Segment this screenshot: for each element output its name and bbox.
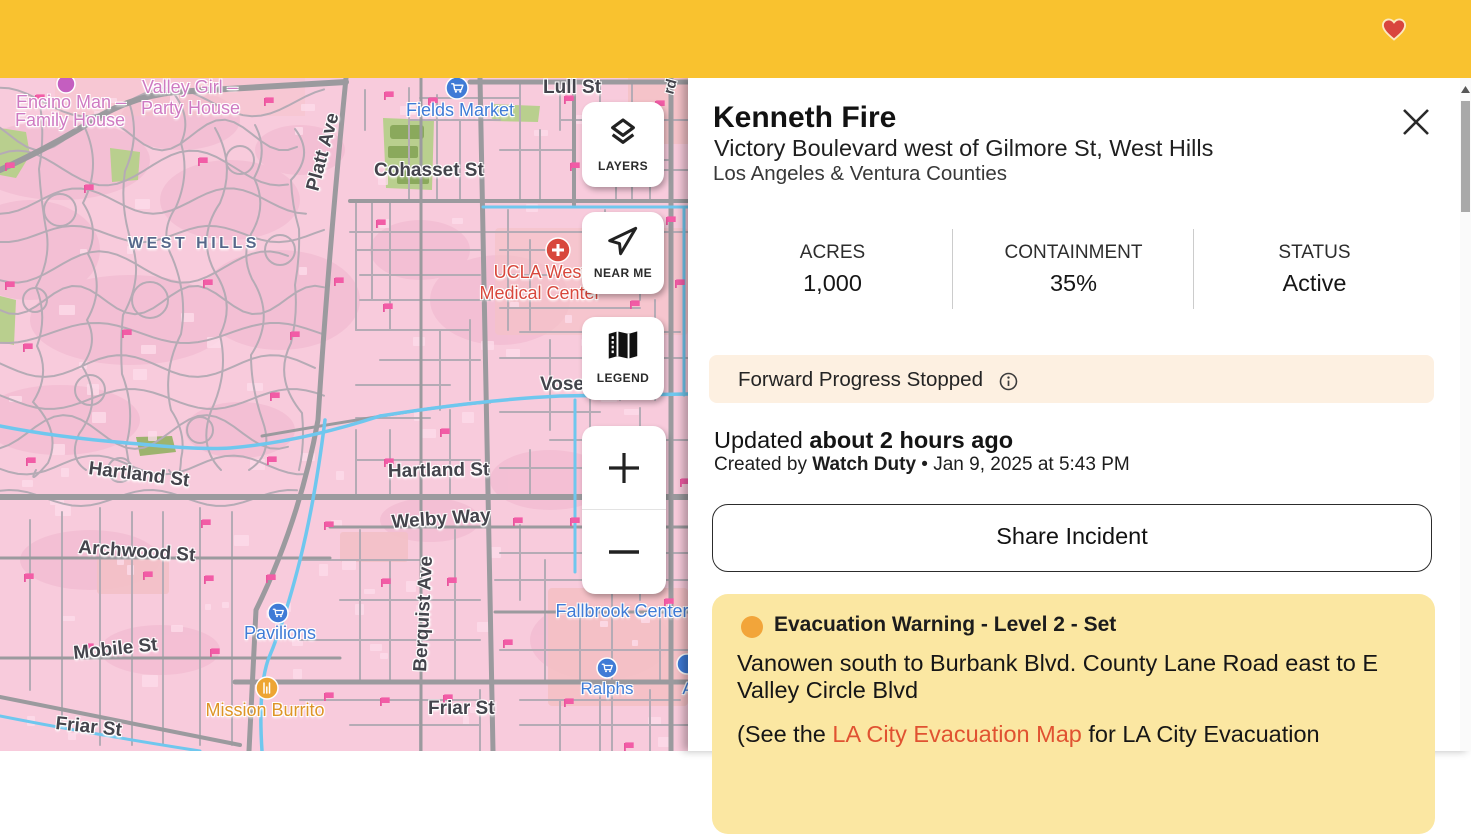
svg-text:Family House: Family House — [15, 110, 125, 130]
svg-text:Ralphs: Ralphs — [581, 679, 634, 698]
svg-text:Vose: Vose — [540, 374, 584, 395]
svg-text:WEST HILLS: WEST HILLS — [128, 235, 260, 252]
svg-text:Party House: Party House — [141, 98, 240, 118]
svg-text:Encino Man –: Encino Man – — [16, 92, 126, 112]
svg-text:Cohasset St: Cohasset St — [374, 160, 484, 181]
svg-text:Valley Girl –: Valley Girl – — [142, 78, 238, 97]
svg-text:Fallbrook Center: Fallbrook Center — [555, 601, 688, 621]
svg-text:Fields Market: Fields Market — [406, 100, 514, 120]
svg-text:Friar St: Friar St — [428, 698, 495, 719]
svg-text:Pavilions: Pavilions — [244, 623, 316, 643]
svg-text:Mission Burrito: Mission Burrito — [205, 700, 324, 720]
svg-text:Hartland St: Hartland St — [388, 459, 490, 482]
svg-text:Lull St: Lull St — [543, 78, 602, 98]
svg-text:UCLA West: UCLA West — [494, 262, 587, 282]
